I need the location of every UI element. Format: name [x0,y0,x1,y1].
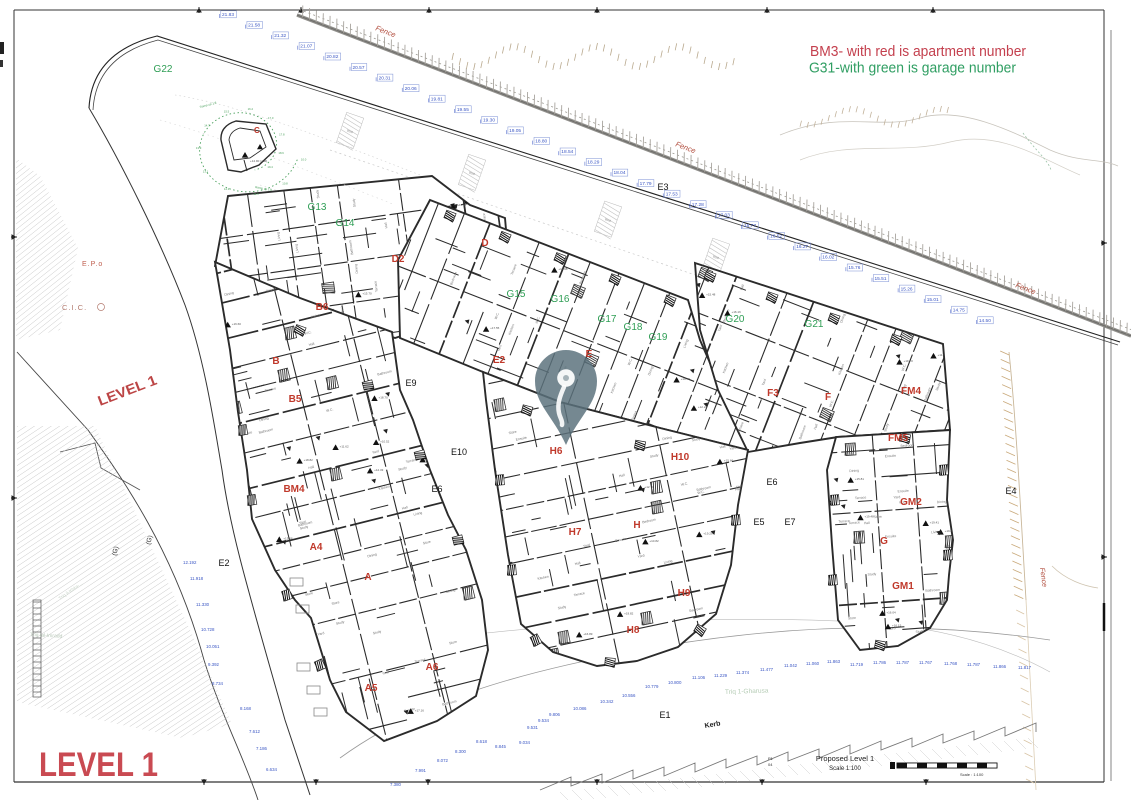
svg-text:18.04: 18.04 [614,170,626,176]
svg-text:18.29: 18.29 [587,160,599,166]
svg-text:9.806: 9.806 [549,712,561,717]
svg-text:G19: G19 [649,332,668,343]
svg-text:+15.70: +15.70 [362,292,372,296]
svg-text:9.392: 9.392 [208,662,220,667]
svg-text:D2: D2 [392,254,405,265]
svg-text:16.27: 16.27 [796,244,808,250]
svg-text:8.300: 8.300 [455,749,467,754]
svg-text:18.80: 18.80 [535,139,547,145]
svg-text:11.477: 11.477 [760,667,774,672]
svg-text:12.3: 12.3 [224,187,230,191]
svg-text:C.I.C.: C.I.C. [62,303,87,312]
svg-text:11.817: 11.817 [1018,665,1032,670]
svg-text:15.51: 15.51 [875,276,887,282]
svg-text:Ensuite: Ensuite [885,454,897,459]
svg-text:+19.41: +19.41 [930,520,940,524]
svg-text:+12.70: +12.70 [645,485,655,489]
svg-text:E5: E5 [753,517,764,527]
svg-text:8.618: 8.618 [476,739,488,744]
svg-text:F: F [825,392,831,403]
svg-text:11.374: 11.374 [736,670,750,675]
svg-text:7.612: 7.612 [249,729,261,734]
svg-text:B5: B5 [289,394,302,405]
svg-text:11.863: 11.863 [827,659,841,664]
svg-text:11.719: 11.719 [850,662,864,667]
svg-text:10.086: 10.086 [573,706,587,711]
svg-text:+15.66: +15.66 [724,459,734,463]
svg-text:GM1: GM1 [892,581,914,592]
svg-text:E4: E4 [1005,486,1016,496]
svg-text:10.051: 10.051 [206,644,220,649]
svg-text:17.0: 17.0 [268,116,274,120]
svg-text:7.186: 7.186 [256,746,268,751]
svg-text:H6: H6 [550,446,563,457]
svg-text:13.1: 13.1 [203,170,209,174]
svg-text:Study: Study [867,572,876,577]
svg-text:11.106: 11.106 [692,675,706,680]
svg-text:15.01: 15.01 [927,297,939,303]
svg-text:E.P.o: E.P.o [82,261,103,268]
svg-text:16.2: 16.2 [248,107,254,111]
svg-text:G14: G14 [336,218,355,229]
svg-text:7.380: 7.380 [390,782,402,787]
svg-text:+12.33: +12.33 [374,468,384,472]
svg-text:GM2: GM2 [900,497,922,508]
svg-text:11.787: 11.787 [967,662,981,667]
svg-text:G15: G15 [507,289,526,300]
svg-text:E10: E10 [451,447,467,457]
svg-text:Store: Store [848,616,856,621]
svg-text:21.83: 21.83 [222,12,234,18]
svg-text:E6: E6 [766,477,777,487]
svg-text:B6: B6 [316,302,329,313]
svg-text:19.81: 19.81 [431,96,443,102]
svg-text:+19.47: +19.47 [681,377,691,381]
svg-text:E3: E3 [657,182,668,192]
svg-text:Terrace: Terrace [855,495,867,500]
svg-text:15.76: 15.76 [848,265,860,271]
svg-text:13.9: 13.9 [196,146,202,150]
svg-text:+11.98: +11.98 [558,267,567,271]
svg-text:8.168: 8.168 [240,706,252,711]
svg-text:A: A [364,572,371,583]
svg-text:+19.48: +19.48 [865,515,875,519]
svg-text:E9: E9 [405,378,416,388]
svg-text:+16.15: +16.15 [892,624,902,628]
svg-text:+15.68: +15.68 [283,536,293,540]
svg-text:E7: E7 [784,517,795,527]
svg-text:G22: G22 [154,64,173,75]
svg-text:14.75: 14.75 [953,307,965,313]
svg-text:Hall: Hall [864,521,870,525]
svg-text:11.866: 11.866 [993,664,1007,669]
svg-text:+14.90 (wall): +14.90 (wall) [250,159,267,163]
svg-text:G20: G20 [726,314,745,325]
svg-text:20.06: 20.06 [405,86,417,92]
svg-text:G21: G21 [805,319,824,330]
svg-text:+16.04: +16.04 [886,610,896,614]
svg-text:Scale 1:100: Scale 1:100 [829,766,861,772]
svg-text:+19.70: +19.70 [904,359,914,363]
svg-text:20.57: 20.57 [353,65,365,71]
svg-text:H: H [633,520,640,531]
svg-text:Store: Store [874,515,882,520]
svg-text:9.534: 9.534 [538,718,550,723]
svg-text:A4: A4 [310,542,323,553]
svg-text:G31-with green is garage numbe: G31-with green is garage number [809,61,1016,77]
svg-text:19.55: 19.55 [457,107,469,113]
svg-text:F3: F3 [767,388,779,399]
svg-text:11.767: 11.767 [919,660,933,665]
svg-text:10.0: 10.0 [301,158,307,162]
svg-text:A5: A5 [365,683,378,694]
svg-text:6.634: 6.634 [266,767,278,772]
svg-text:17.03: 17.03 [718,213,730,219]
svg-text:11.787: 11.787 [896,660,910,665]
svg-text:E1: E1 [659,710,670,720]
svg-text:E2: E2 [493,355,506,366]
svg-text:20.82: 20.82 [326,54,338,60]
svg-text:11.6: 11.6 [254,192,260,196]
svg-text:9.531: 9.531 [527,725,539,730]
svg-text:10.8: 10.8 [282,181,288,185]
svg-text:G17: G17 [598,314,617,325]
svg-text:Ensuite: Ensuite [897,489,909,494]
svg-text:10.779: 10.779 [645,684,659,689]
svg-text:11.330: 11.330 [196,602,210,607]
svg-text:FM4: FM4 [901,386,921,397]
svg-text:Hall: Hall [384,222,389,229]
svg-text:+17.55: +17.55 [490,326,500,330]
svg-text:16.77: 16.77 [744,223,756,229]
svg-text:+11.62: +11.62 [340,444,349,448]
svg-text:H7: H7 [569,527,582,538]
svg-text:19.05: 19.05 [509,128,521,134]
svg-text:11.060: 11.060 [806,661,820,666]
svg-text:8.734: 8.734 [212,681,224,686]
svg-text:Dining: Dining [849,468,859,473]
svg-text:15.5: 15.5 [224,109,230,113]
svg-text:11.229: 11.229 [714,673,728,678]
svg-text:BM4: BM4 [283,484,305,495]
svg-text:B: B [272,356,279,367]
svg-text:7.991: 7.991 [415,768,427,773]
svg-text:18.6: 18.6 [278,151,284,155]
svg-text:+17.16: +17.16 [415,708,425,712]
svg-text:10.342: 10.342 [600,699,614,704]
svg-text:10.800: 10.800 [668,680,682,685]
svg-text:14.7: 14.7 [204,124,210,128]
svg-text:11.786: 11.786 [873,660,887,665]
svg-text:E6: E6 [431,484,442,494]
svg-text:17.28: 17.28 [692,202,704,208]
svg-text:E2: E2 [218,558,229,568]
svg-text:+18.70: +18.70 [379,395,389,399]
svg-text:H10: H10 [671,452,690,463]
svg-text:+16.60: +16.60 [232,322,242,326]
svg-text:D: D [481,238,488,249]
svg-text:20.31: 20.31 [379,75,391,81]
svg-text:16.52: 16.52 [770,234,782,240]
svg-text:Terrace: Terrace [838,519,850,524]
svg-text:17.8: 17.8 [279,133,285,137]
svg-text:10.728: 10.728 [201,627,215,632]
svg-text:G: G [880,536,888,547]
svg-text:+15.48: +15.48 [706,292,716,296]
svg-text:A6: A6 [426,662,439,673]
svg-text:17.53: 17.53 [666,191,678,197]
svg-text:+10.52: +10.52 [380,439,390,443]
svg-text:+18.82: +18.82 [304,458,314,462]
svg-text:12.192: 12.192 [183,560,197,565]
svg-text:Dining: Dining [937,500,947,505]
svg-text:+10.82: +10.82 [649,539,659,543]
svg-text:FM5: FM5 [888,433,908,444]
svg-text:+19.82: +19.82 [624,611,634,615]
svg-text:Scale : 1:100: Scale : 1:100 [960,772,984,777]
svg-text:11.042: 11.042 [784,663,798,668]
svg-text:17.79: 17.79 [640,181,652,187]
svg-text:H8: H8 [627,625,640,636]
svg-text:P1: P1 [768,756,774,761]
svg-text:+16.89: +16.89 [583,632,593,636]
svg-text:10.556: 10.556 [622,693,636,698]
svg-text:11.768: 11.768 [944,661,958,666]
svg-text:LEVEL 1: LEVEL 1 [39,746,158,784]
svg-text:+14.27: +14.27 [457,203,467,207]
svg-text:+15.81: +15.81 [855,477,865,481]
svg-text:9.034: 9.034 [519,740,531,745]
svg-text:16.02: 16.02 [822,255,834,261]
svg-text:14.50: 14.50 [979,318,991,324]
svg-text:19.30: 19.30 [483,118,495,124]
svg-text:H9: H9 [678,588,691,599]
svg-text:G16: G16 [551,294,570,305]
svg-text:Terrace: Terrace [848,520,860,525]
svg-text:04: 04 [768,762,773,767]
svg-text:18.54: 18.54 [561,149,573,155]
svg-text:21.07: 21.07 [300,44,312,50]
svg-text:G13: G13 [308,202,327,213]
svg-text:Proposed Level 1: Proposed Level 1 [816,754,874,763]
svg-text:G18: G18 [624,322,643,333]
svg-text:C: C [254,126,260,135]
svg-text:8.072: 8.072 [437,758,449,763]
svg-text:21.32: 21.32 [274,33,286,39]
svg-text:BM3- with red is apartment num: BM3- with red is apartment number [810,44,1026,60]
svg-text:11.918: 11.918 [190,576,204,581]
svg-text:21.58: 21.58 [248,23,260,29]
svg-text:19.4: 19.4 [267,165,273,169]
svg-text:8.845: 8.845 [495,744,507,749]
svg-text:15.26: 15.26 [901,286,913,292]
